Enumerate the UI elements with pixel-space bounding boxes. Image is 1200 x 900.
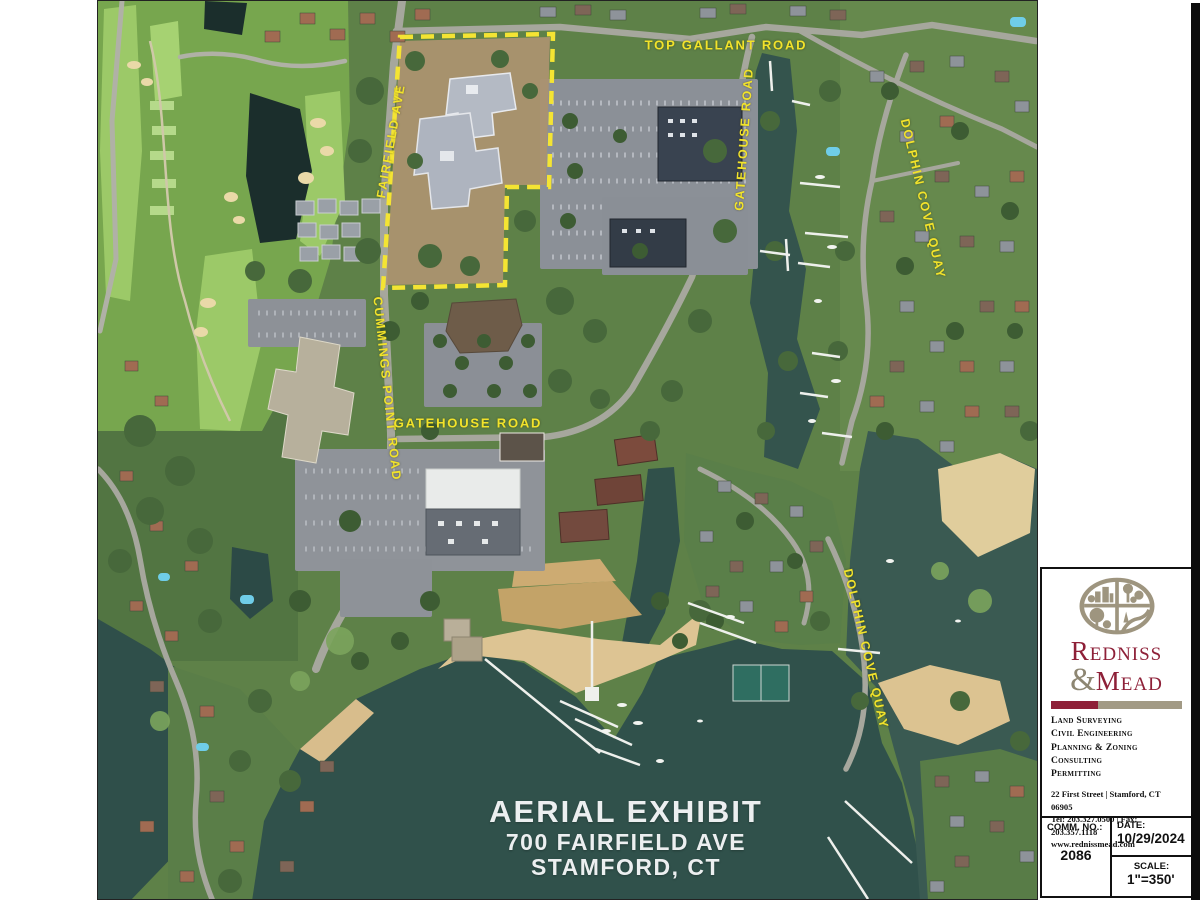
comm-no-label: COMM. NO.: [1047, 822, 1105, 833]
comm-no-value: 2086 [1047, 847, 1105, 863]
firm-name-bottom: Mead [1096, 666, 1163, 696]
dock-platform [585, 687, 599, 701]
service-item: Civil Engineering [1051, 728, 1182, 741]
road-label-top-gallant: TOP GALLANT ROAD [645, 38, 808, 53]
service-item: Land Surveying [1051, 715, 1182, 728]
address-line: 22 First Street | Stamford, CT 06905 [1051, 788, 1182, 813]
redniss-mead-logo-icon [1069, 575, 1165, 639]
firm-name: Redniss &Mead [1042, 639, 1191, 696]
aerial-exhibit-sheet: TOP GALLANT ROAD FAIRFIELD AVE GATEHOUSE… [0, 0, 1200, 900]
map-title-line3: STAMFORD, CT [489, 855, 763, 881]
scale-label: SCALE: [1117, 861, 1186, 872]
map-title-line2: 700 FAIRFIELD AVE [489, 830, 763, 856]
aerial-photo-art [98, 1, 1037, 899]
map-title-line1: AERIAL EXHIBIT [489, 795, 763, 830]
aerial-photo: TOP GALLANT ROAD FAIRFIELD AVE GATEHOUSE… [97, 0, 1038, 900]
title-block-table: COMM. NO.: 2086 DATE: 10/29/2024 SCALE: … [1042, 816, 1191, 896]
title-block: Redniss &Mead Land Surveying Civil Engin… [1040, 567, 1193, 898]
date-label: DATE: [1117, 820, 1186, 831]
map-title: AERIAL EXHIBIT 700 FAIRFIELD AVE STAMFOR… [489, 795, 763, 881]
road-label-gatehouse-center: GATEHOUSE ROAD [394, 416, 542, 431]
service-item: Planning & Zoning Consulting [1051, 742, 1182, 769]
services-list: Land Surveying Civil Engineering Plannin… [1042, 715, 1191, 781]
date-cell: DATE: 10/29/2024 [1112, 818, 1191, 857]
scale-value: 1"=350' [1117, 872, 1186, 887]
date-value: 10/29/2024 [1117, 831, 1186, 846]
service-item: Permitting [1051, 768, 1182, 781]
scale-cell: SCALE: 1"=350' [1112, 857, 1191, 896]
firm-ampersand: & [1070, 662, 1096, 698]
sheet-edge-strip [1191, 3, 1200, 900]
comm-no-cell: COMM. NO.: 2086 [1042, 818, 1112, 896]
brand-divider-bar [1051, 701, 1182, 709]
